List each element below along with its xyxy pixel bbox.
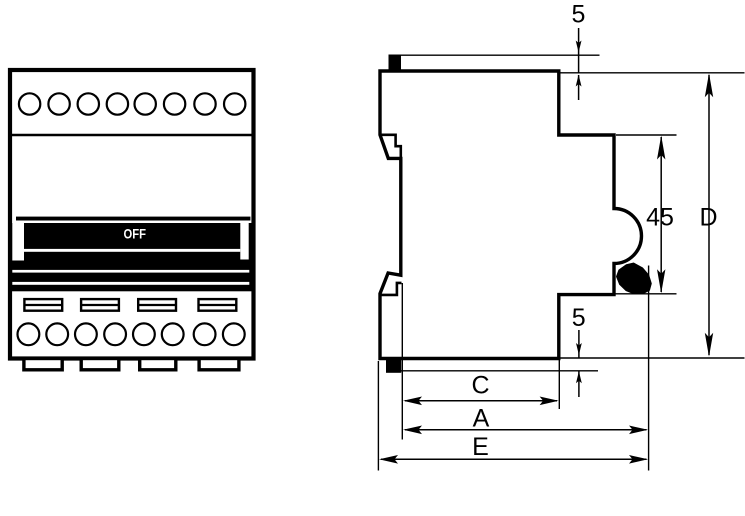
svg-text:45: 45 [646,204,674,232]
svg-text:5: 5 [572,304,586,332]
svg-text:C: C [471,372,489,400]
svg-text:5: 5 [572,1,586,29]
svg-text:A: A [473,405,490,433]
svg-text:OFF: OFF [123,225,146,241]
svg-text:D: D [699,204,717,232]
svg-text:E: E [472,433,489,461]
